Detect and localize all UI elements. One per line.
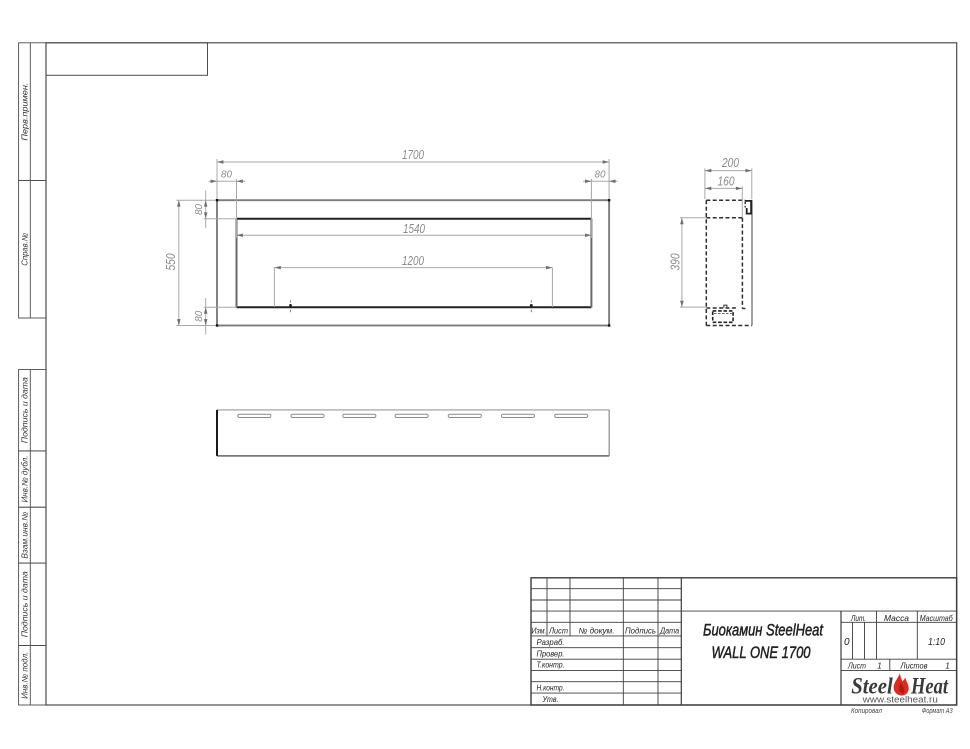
svg-text:Инв.№ дубл.: Инв.№ дубл. [21,456,30,503]
svg-text:Масса: Масса [884,614,910,623]
svg-text:0: 0 [844,637,850,648]
svg-text:1700: 1700 [402,147,425,162]
svg-text:Лит.: Лит. [850,614,866,623]
svg-text:1540: 1540 [403,221,426,236]
svg-text:Копировал: Копировал [851,706,883,715]
svg-text:№ докум.: № докум. [579,626,615,635]
svg-text:Лист: Лист [847,662,866,671]
svg-text:Биокамин SteelHeat: Биокамин SteelHeat [703,622,824,640]
svg-text:Перв.примен.: Перв.примен. [21,83,30,141]
svg-text:Листов: Листов [900,662,928,671]
svg-text:Взам.инв.№: Взам.инв.№ [21,511,30,558]
svg-text:Н.контр.: Н.контр. [537,683,565,692]
svg-text:80: 80 [595,169,606,181]
svg-text:1:10: 1:10 [928,636,945,648]
svg-text:80: 80 [193,204,205,215]
svg-text:Дата: Дата [659,626,679,635]
svg-text:1: 1 [945,662,949,671]
svg-text:Утв.: Утв. [542,695,559,704]
svg-text:160: 160 [718,174,736,189]
svg-text:Разраб.: Разраб. [537,638,565,647]
svg-text:Масштаб: Масштаб [920,614,953,623]
svg-text:www.steelheat.ru: www.steelheat.ru [862,695,938,706]
svg-text:550: 550 [163,253,178,271]
svg-text:Инв.№ подл.: Инв.№ подл. [21,652,30,699]
svg-text:Подпись и дата: Подпись и дата [21,377,30,444]
svg-text:Подпись и дата: Подпись и дата [21,571,30,638]
svg-text:Изм.: Изм. [532,626,547,635]
svg-text:Лист: Лист [548,626,568,635]
svg-text:WALL ONE 1700: WALL ONE 1700 [712,644,812,662]
svg-text:80: 80 [193,311,205,322]
svg-text:200: 200 [721,155,739,170]
svg-text:Подпись: Подпись [625,626,656,635]
svg-text:Провер.: Провер. [537,649,565,658]
svg-text:Т.контр.: Т.контр. [537,661,565,670]
svg-text:1: 1 [877,662,881,671]
svg-text:1200: 1200 [402,253,425,268]
svg-text:390: 390 [667,253,682,271]
svg-text:80: 80 [221,169,232,181]
svg-text:Формат А3: Формат А3 [922,706,954,715]
svg-text:Справ.№: Справ.№ [21,232,30,265]
